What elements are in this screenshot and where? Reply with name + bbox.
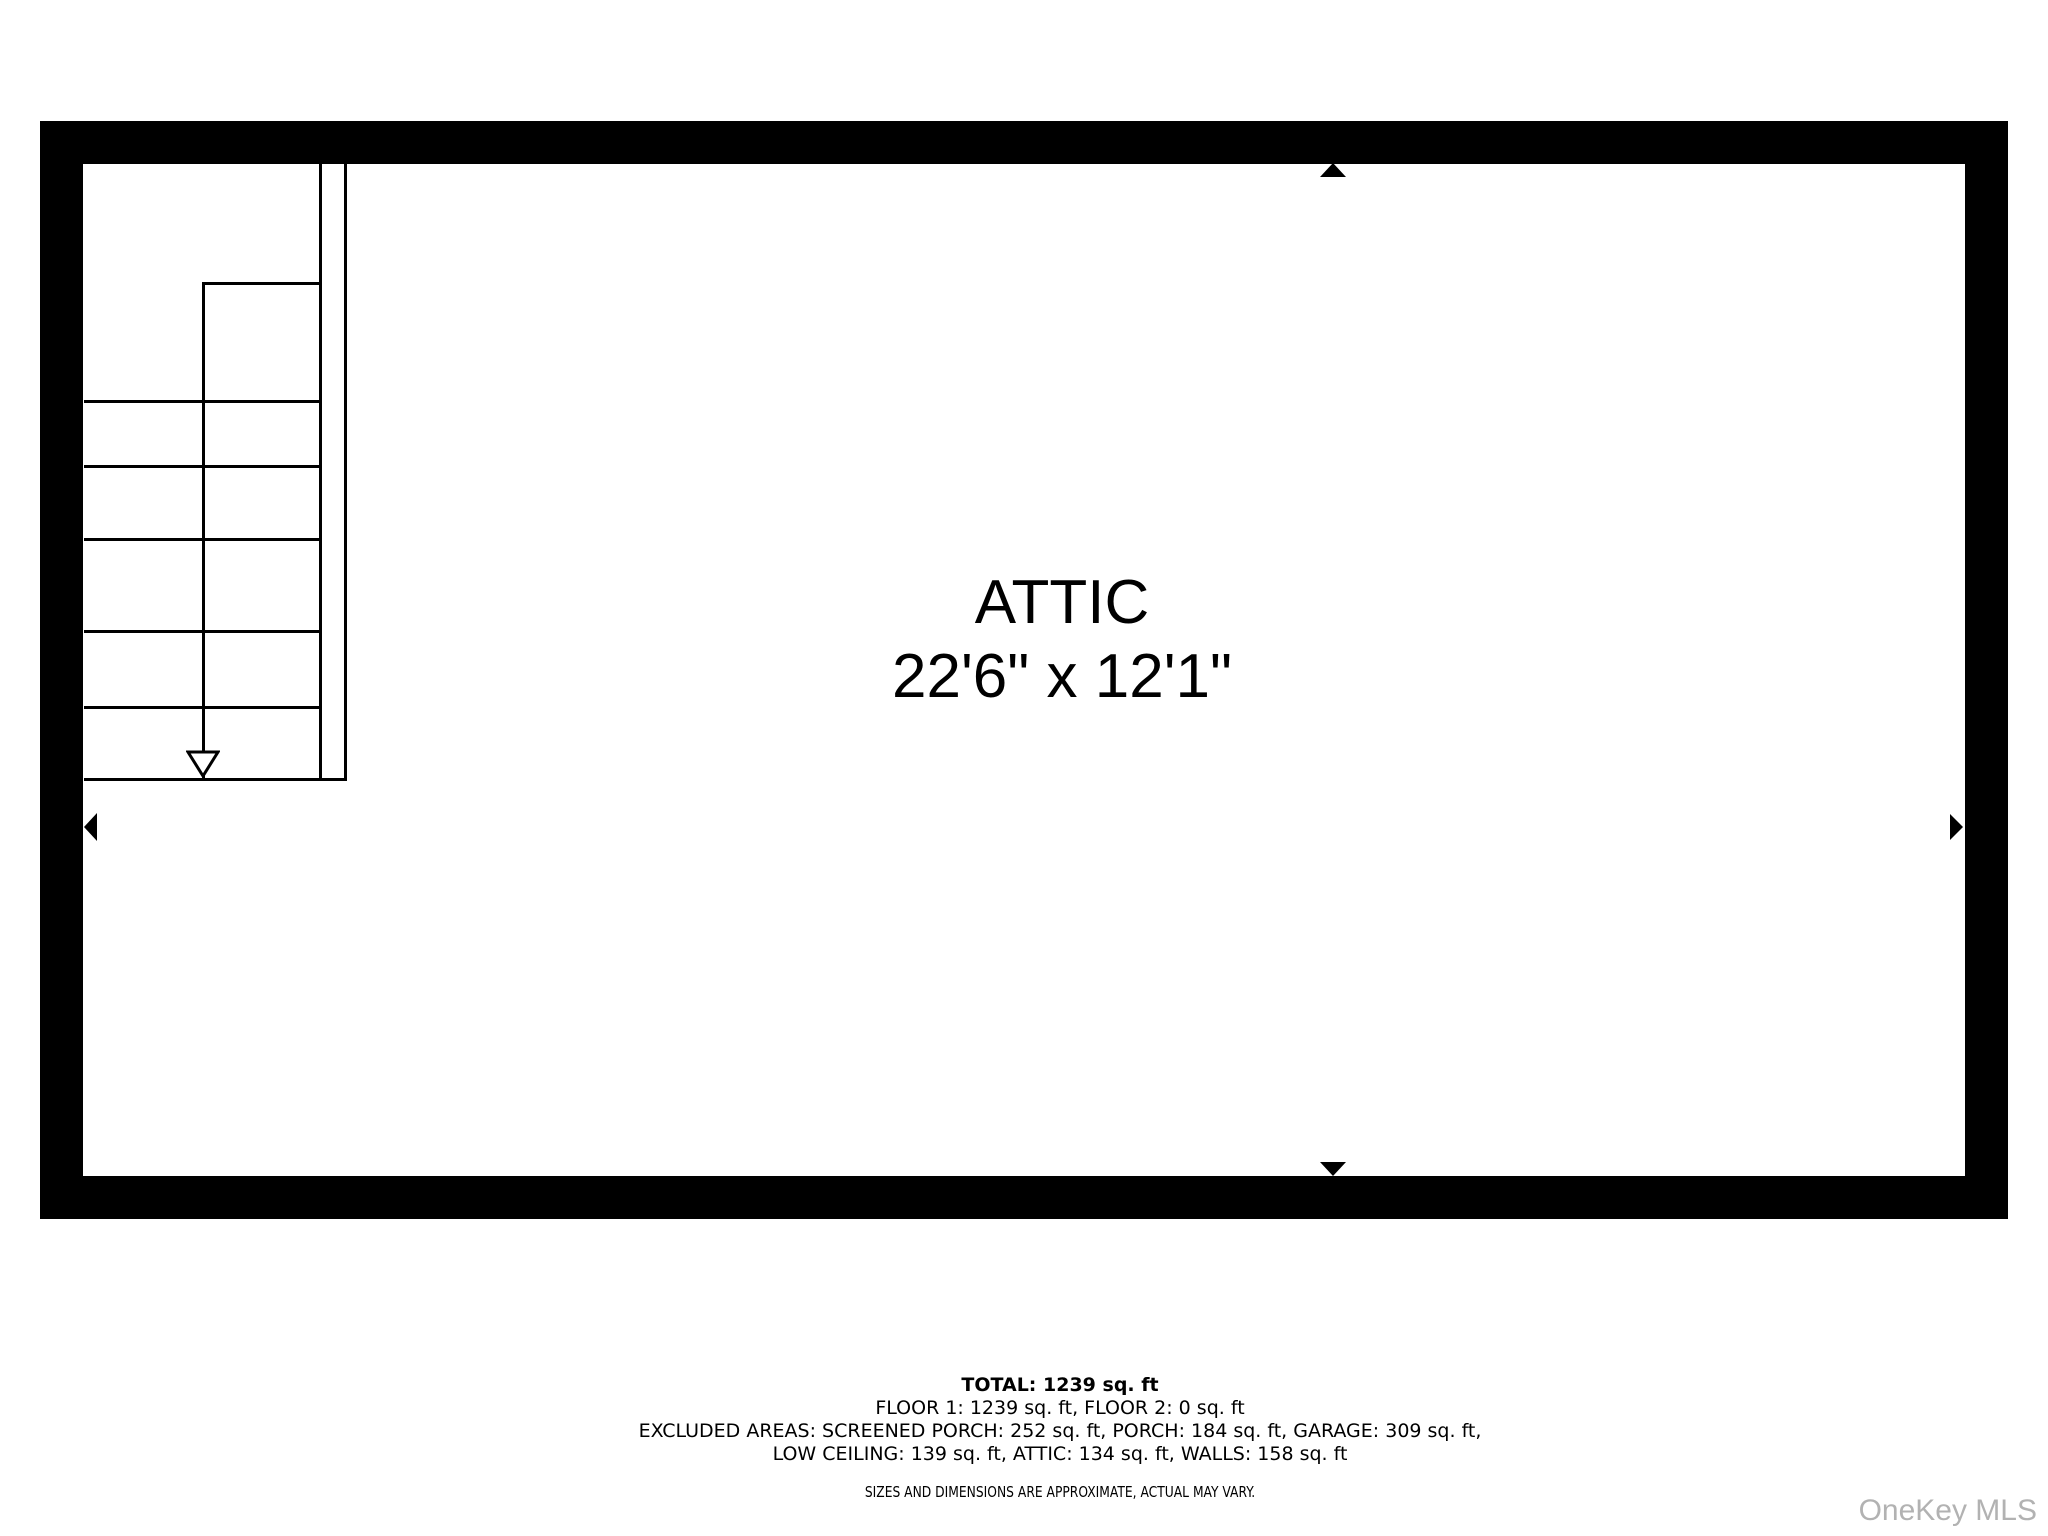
room-dimensions-label: 22'6" x 12'1" bbox=[892, 640, 1232, 714]
area-summary: TOTAL: 1239 sq. ft FLOOR 1: 1239 sq. ft,… bbox=[639, 1374, 1482, 1466]
stairs-down-arrow-icon bbox=[186, 750, 220, 778]
stair-center-line bbox=[202, 282, 205, 778]
floor-plan-page: { "floor_plan": { "room_label": "ATTIC",… bbox=[0, 0, 2048, 1536]
down-triangle-icon bbox=[1320, 1162, 1346, 1176]
room-name-label: ATTIC bbox=[892, 566, 1232, 640]
stair-step bbox=[84, 465, 322, 468]
stair-step bbox=[84, 706, 322, 709]
watermark-text: OneKey MLS bbox=[1859, 1494, 2037, 1528]
up-triangle-icon bbox=[1320, 163, 1346, 177]
stair-landing-line bbox=[202, 282, 322, 285]
excluded-areas-line1: EXCLUDED AREAS: SCREENED PORCH: 252 sq. … bbox=[639, 1420, 1482, 1443]
staircase bbox=[84, 164, 347, 781]
stair-step bbox=[84, 630, 322, 633]
disclaimer-text: SIZES AND DIMENSIONS ARE APPROXIMATE, AC… bbox=[865, 1483, 1255, 1501]
floors-area-label: FLOOR 1: 1239 sq. ft, FLOOR 2: 0 sq. ft bbox=[639, 1397, 1482, 1420]
left-triangle-icon bbox=[84, 813, 97, 841]
room-label-block: ATTIC 22'6" x 12'1" bbox=[892, 566, 1232, 714]
excluded-areas-line2: LOW CEILING: 139 sq. ft, ATTIC: 134 sq. … bbox=[639, 1443, 1482, 1466]
right-triangle-icon bbox=[1950, 814, 1963, 840]
stair-rail-line bbox=[319, 164, 322, 778]
stair-step bbox=[84, 538, 322, 541]
total-area-label: TOTAL: 1239 sq. ft bbox=[639, 1374, 1482, 1397]
stair-step bbox=[84, 400, 322, 403]
